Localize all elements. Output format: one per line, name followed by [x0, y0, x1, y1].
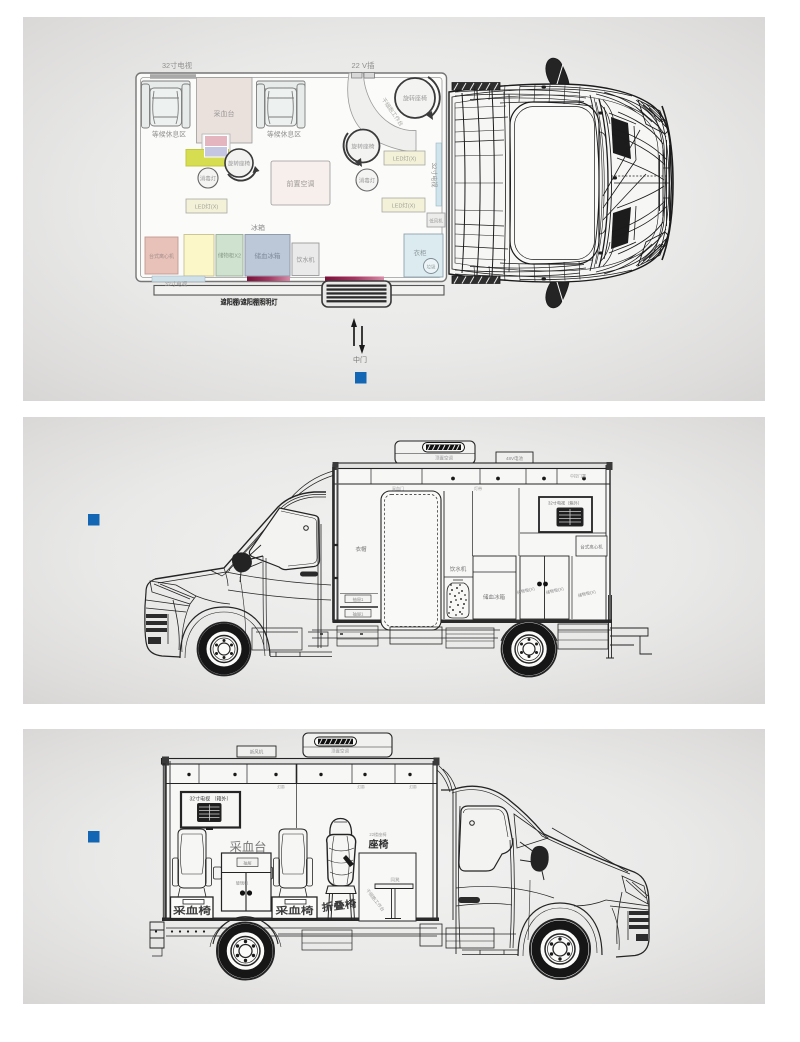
svg-text:顶置空调: 顶置空调 — [331, 748, 349, 755]
svg-text:抽屉1: 抽屉1 — [353, 596, 364, 603]
svg-text:灯带: 灯带 — [409, 785, 417, 790]
svg-text:中控门罩: 中控门罩 — [570, 473, 586, 479]
svg-text:同凳: 同凳 — [391, 877, 400, 884]
svg-text:32寸电视: 32寸电视 — [165, 280, 188, 288]
svg-text:新风机: 新风机 — [250, 749, 264, 756]
svg-text:采血台: 采血台 — [214, 109, 235, 118]
svg-text:灯带: 灯带 — [357, 785, 365, 790]
svg-text:LED灯(X): LED灯(X) — [393, 155, 417, 163]
svg-text:灯带: 灯带 — [277, 785, 285, 790]
svg-text:采血椅: 采血椅 — [172, 905, 212, 917]
svg-text:储物柜X2: 储物柜X2 — [218, 252, 241, 260]
svg-text:旋转座椅: 旋转座椅 — [351, 143, 374, 151]
svg-text:储血冰箱: 储血冰箱 — [255, 251, 282, 260]
svg-text:储血冰箱: 储血冰箱 — [483, 593, 506, 601]
svg-text:饮水机: 饮水机 — [450, 565, 467, 573]
svg-text:灯带: 灯带 — [474, 485, 482, 491]
svg-text:48V电池: 48V电池 — [506, 455, 524, 461]
svg-text:等候休息区: 等候休息区 — [152, 130, 186, 139]
svg-text:前置空调: 前置空调 — [287, 179, 315, 188]
svg-text:采血门: 采血门 — [392, 485, 404, 491]
svg-text:中门: 中门 — [353, 355, 367, 364]
svg-text:冰箱: 冰箱 — [251, 223, 265, 232]
svg-text:32寸电视 （箱外）: 32寸电视 （箱外） — [190, 796, 232, 803]
svg-text:采血椅: 采血椅 — [274, 905, 314, 917]
svg-text:旋转座椅: 旋转座椅 — [403, 95, 427, 103]
svg-text:32寸电视: 32寸电视 — [430, 163, 438, 188]
svg-text:消毒灯: 消毒灯 — [359, 177, 376, 185]
svg-text:抽屉1: 抽屉1 — [353, 610, 364, 617]
svg-text:顶置空调: 顶置空调 — [435, 455, 453, 462]
svg-text:LED灯(X): LED灯(X) — [195, 203, 219, 211]
svg-text:等候休息区: 等候休息区 — [267, 130, 301, 139]
svg-text:玻璃柜: 玻璃柜 — [236, 880, 249, 887]
svg-text:抽屉: 抽屉 — [243, 860, 251, 867]
svg-text:遮阳棚/遮阳棚照明灯: 遮阳棚/遮阳棚照明灯 — [221, 297, 278, 307]
svg-text:台式离心机: 台式离心机 — [580, 544, 603, 551]
svg-text:22楼座椅: 22楼座椅 — [369, 831, 386, 838]
svg-text:旋转座椅: 旋转座椅 — [228, 160, 251, 168]
svg-text:衣帽: 衣帽 — [355, 545, 367, 553]
svg-text:低风机: 低风机 — [429, 218, 443, 225]
svg-text:采血台: 采血台 — [230, 839, 267, 854]
svg-text:32寸电视（箱外）: 32寸电视（箱外） — [548, 500, 582, 507]
svg-text:衣柜: 衣柜 — [414, 248, 428, 257]
svg-text:饮水机: 饮水机 — [296, 256, 314, 264]
svg-text:LED灯(X): LED灯(X) — [392, 202, 416, 210]
svg-text:消毒灯: 消毒灯 — [200, 175, 217, 183]
svg-text:垃圾: 垃圾 — [427, 264, 436, 271]
svg-text:座椅: 座椅 — [367, 839, 389, 851]
svg-text:台式离心机: 台式离心机 — [149, 253, 174, 260]
svg-text:22 V插: 22 V插 — [352, 60, 375, 70]
svg-text:32寸电视: 32寸电视 — [162, 60, 192, 70]
